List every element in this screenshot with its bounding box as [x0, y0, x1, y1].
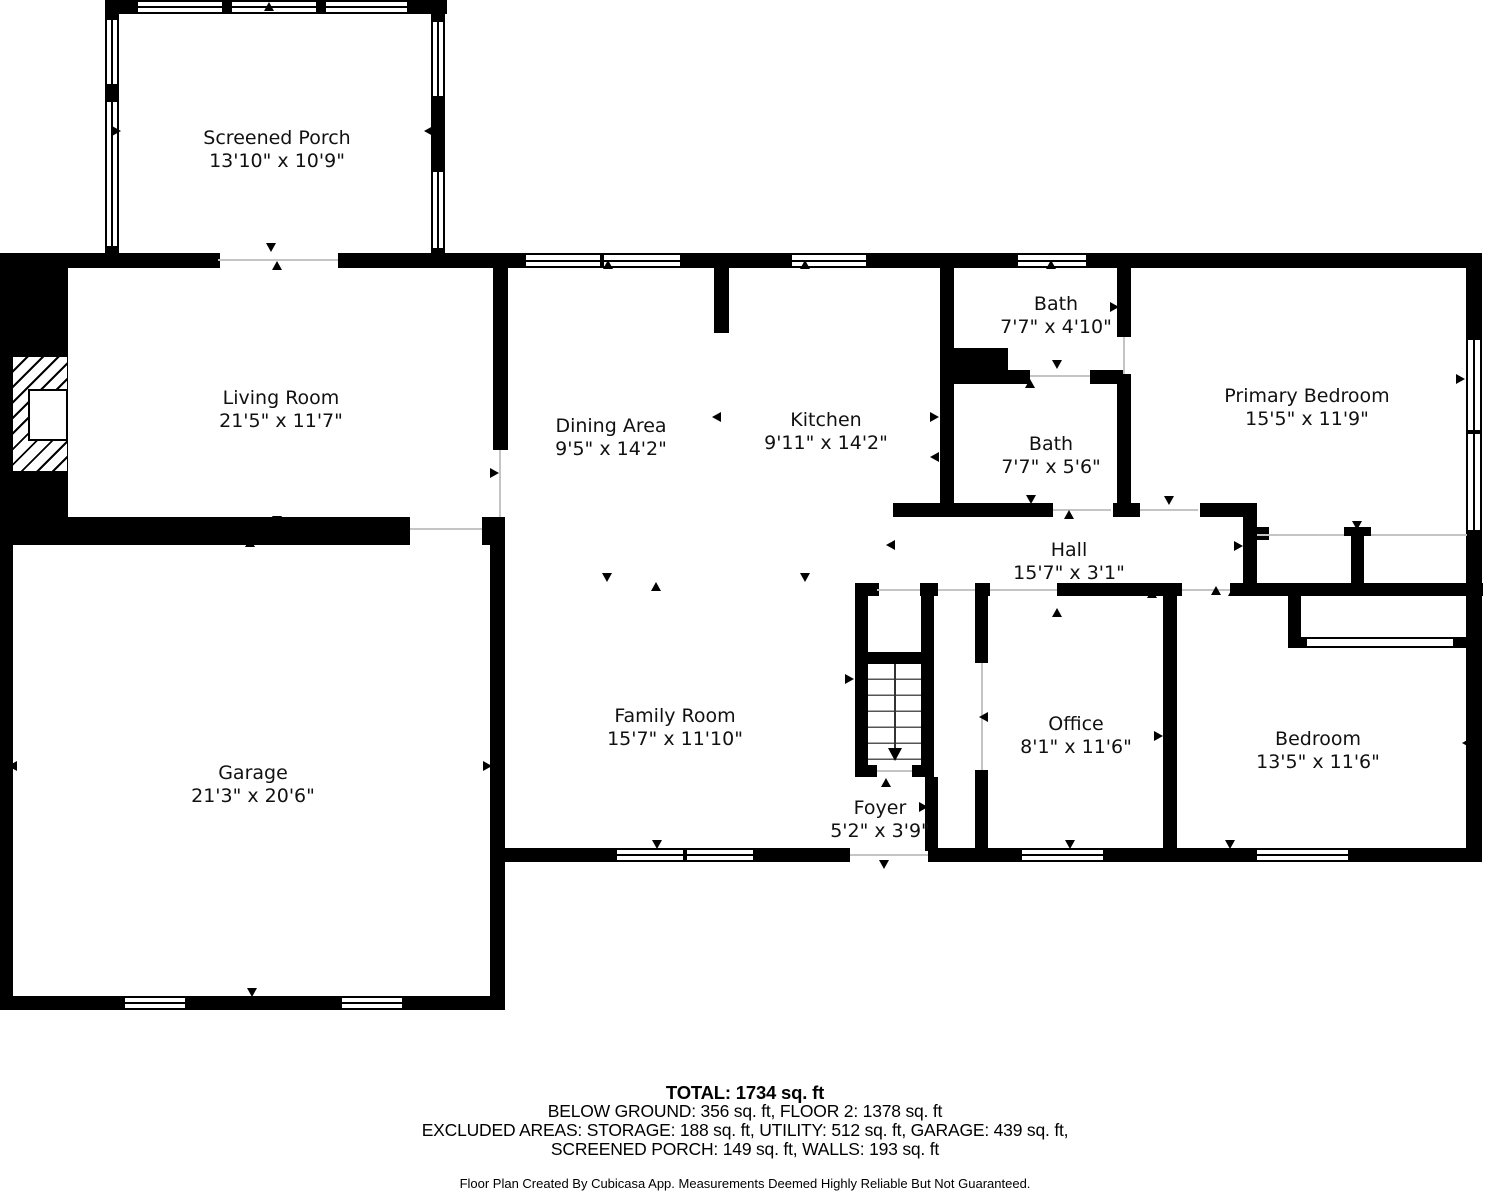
room-label-bath-upper: Bath7'7" x 4'10": [1000, 293, 1112, 339]
room-label-dining-area: Dining Area9'5" x 14'2": [555, 415, 667, 461]
door-arrow: [1025, 379, 1035, 388]
room-dims: 21'5" x 11'7": [219, 410, 343, 432]
total-area-line: TOTAL: 1734 sq. ft: [0, 1083, 1490, 1102]
front-door-line: [850, 854, 928, 856]
window: [1466, 338, 1482, 432]
wall-segment: [893, 503, 1053, 517]
door-opening-line: [877, 770, 912, 772]
door-opening-line: [1030, 375, 1090, 377]
room-dims: 5'2" x 3'9": [830, 820, 930, 842]
door-arrow: [881, 778, 891, 787]
door-arrow: [424, 126, 433, 136]
door-arrow: [603, 260, 613, 269]
room-label-garage: Garage21'3" x 20'6": [191, 762, 315, 808]
window: [615, 848, 685, 862]
wall-segment: [1088, 253, 1482, 268]
door-arrow: [1052, 360, 1062, 369]
wall-segment: [921, 583, 934, 777]
room-label-living-room: Living Room21'5" x 11'7": [219, 387, 343, 433]
door-arrow: [1462, 738, 1471, 748]
room-name: Screened Porch: [203, 127, 350, 149]
room-label-office: Office8'1" x 11'6": [1020, 713, 1132, 759]
door-arrow: [112, 126, 121, 136]
door-arrow: [1456, 374, 1465, 384]
door-arrow: [483, 761, 492, 771]
door-arrow: [266, 243, 276, 252]
wall-segment: [490, 848, 615, 862]
door-opening-line: [499, 450, 501, 517]
room-name: Living Room: [223, 387, 340, 409]
door-arrow: [1026, 495, 1036, 504]
room-name: Foyer: [854, 797, 907, 819]
door-opening-line: [1053, 509, 1111, 511]
door-opening-line: [1140, 509, 1198, 511]
door-arrow: [1052, 608, 1062, 617]
door-arrow: [1154, 731, 1163, 741]
door-arrow: [1352, 258, 1362, 267]
room-dims: 7'7" x 4'10": [1000, 316, 1112, 338]
window: [1020, 848, 1105, 862]
door-arrow: [1234, 541, 1243, 551]
window: [1466, 432, 1482, 532]
wall-segment: [1351, 531, 1364, 589]
door-arrow: [930, 452, 939, 462]
wall-segment: [1350, 848, 1482, 862]
room-dims: 13'10" x 10'9": [209, 150, 345, 172]
stairs-down-arrow: [888, 748, 902, 761]
room-name: Bath: [1029, 433, 1073, 455]
fireplace: [28, 389, 68, 441]
wall-segment: [0, 517, 410, 545]
door-arrow: [1211, 586, 1221, 595]
room-name: Garage: [218, 762, 288, 784]
room-label-foyer: Foyer5'2" x 3'9": [830, 797, 930, 843]
wall-segment: [0, 268, 68, 356]
wall-segment: [714, 253, 729, 333]
door-arrow: [930, 412, 939, 422]
credit-line: Floor Plan Created By Cubicasa App. Meas…: [0, 1176, 1490, 1191]
door-opening-line: [938, 589, 975, 591]
window: [431, 20, 445, 98]
door-arrow: [879, 860, 889, 869]
room-label-screened-porch: Screened Porch13'10" x 10'9": [203, 127, 350, 173]
wall-segment: [868, 253, 1016, 268]
wall-segment: [0, 253, 220, 268]
door-opening-line: [877, 589, 920, 591]
door-arrow: [800, 260, 810, 269]
wall-segment: [1243, 503, 1257, 595]
wall-segment: [338, 253, 524, 268]
door-arrow: [1046, 260, 1056, 269]
wall-segment: [948, 370, 1030, 384]
room-dims: 15'7" x 11'10": [607, 728, 743, 750]
door-opening-line: [1123, 337, 1125, 374]
door-arrow: [1228, 587, 1238, 596]
wall-segment: [975, 770, 988, 852]
door-opening-line: [990, 589, 1057, 591]
room-label-bath-lower: Bath7'7" x 5'6": [1001, 433, 1101, 479]
door-arrow: [272, 261, 282, 270]
closet-sliding-door: [1305, 637, 1455, 648]
door-arrow: [652, 840, 662, 849]
window: [602, 253, 682, 268]
wall-segment: [1117, 374, 1131, 505]
wall-segment: [682, 253, 790, 268]
door-arrow: [1352, 521, 1362, 530]
room-dims: 9'11" x 14'2": [764, 432, 888, 454]
staircase: [868, 664, 921, 765]
room-dims: 7'7" x 5'6": [1001, 456, 1101, 478]
door-arrow: [800, 573, 810, 582]
stairs-direction-line: [894, 664, 896, 750]
door-arrow: [1065, 840, 1075, 849]
wall-segment: [755, 848, 850, 862]
room-name: Office: [1048, 713, 1103, 735]
wall-segment: [1230, 583, 1483, 596]
window: [431, 170, 445, 250]
door-arrow: [845, 674, 854, 684]
room-name: Family Room: [614, 705, 735, 727]
wall-segment: [1452, 637, 1482, 648]
wall-segment: [0, 996, 505, 1010]
window: [105, 18, 119, 86]
floor-plan: Screened Porch13'10" x 10'9" Living Room…: [0, 0, 1490, 1196]
window: [136, 0, 224, 14]
room-label-kitchen: Kitchen9'11" x 14'2": [764, 409, 888, 455]
room-label-primary-bedroom: Primary Bedroom15'5" x 11'9": [1224, 385, 1389, 431]
window: [340, 996, 404, 1010]
door-arrow: [490, 468, 499, 478]
window: [123, 996, 187, 1010]
room-name: Primary Bedroom: [1224, 385, 1389, 407]
door-arrow: [272, 516, 282, 525]
wall-segment: [490, 517, 505, 1010]
wall-segment: [1105, 848, 1255, 862]
window: [230, 0, 318, 14]
wall-segment: [1113, 503, 1140, 517]
area-line-excluded-1: EXCLUDED AREAS: STORAGE: 188 sq. ft, UTI…: [0, 1121, 1490, 1140]
room-dims: 8'1" x 11'6": [1020, 736, 1132, 758]
room-name: Bedroom: [1275, 728, 1361, 750]
room-name: Dining Area: [555, 415, 666, 437]
room-dims: 9'5" x 14'2": [555, 438, 667, 460]
wall-segment: [975, 583, 988, 663]
room-label-bedroom: Bedroom13'5" x 11'6": [1256, 728, 1380, 774]
door-arrow: [602, 573, 612, 582]
door-arrow: [979, 712, 988, 722]
door-arrow: [651, 582, 661, 591]
window: [105, 100, 119, 248]
room-dims: 15'5" x 11'9": [1245, 408, 1369, 430]
door-arrow: [264, 2, 274, 11]
wall-segment: [1163, 596, 1177, 848]
area-line-below-ground: BELOW GROUND: 356 sq. ft, FLOOR 2: 1378 …: [0, 1102, 1490, 1121]
door-arrow: [712, 412, 721, 422]
room-label-family-room: Family Room15'7" x 11'10": [607, 705, 743, 751]
wall-segment: [855, 652, 868, 777]
wall-segment: [928, 848, 1020, 862]
door-arrow: [940, 302, 949, 312]
window: [324, 0, 409, 14]
wall-segment: [493, 268, 508, 450]
bath-vanity-block: [948, 348, 1008, 372]
door-arrow: [1064, 510, 1074, 519]
door-arrow: [1225, 840, 1235, 849]
door-arrow: [1147, 589, 1157, 598]
door-opening-line: [1182, 589, 1230, 591]
door-arrow: [1164, 496, 1174, 505]
wall-segment: [1117, 253, 1131, 337]
door-arrow: [247, 988, 257, 997]
room-name: Hall: [1051, 539, 1088, 561]
room-dims: 15'7" x 3'1": [1013, 562, 1125, 584]
room-dims: 21'3" x 20'6": [191, 785, 315, 807]
room-name: Bath: [1034, 293, 1078, 315]
area-summary: TOTAL: 1734 sq. ft BELOW GROUND: 356 sq.…: [0, 1083, 1490, 1159]
window: [524, 253, 602, 268]
window: [685, 848, 755, 862]
wall-segment: [912, 765, 934, 777]
door-arrow: [247, 530, 257, 539]
room-name: Kitchen: [790, 409, 861, 431]
door-arrow: [8, 761, 17, 771]
room-dims: 13'5" x 11'6": [1256, 751, 1380, 773]
room-label-hall: Hall15'7" x 3'1": [1013, 539, 1125, 585]
door-opening-line: [410, 528, 482, 530]
area-line-excluded-2: SCREENED PORCH: 149 sq. ft, WALLS: 193 s…: [0, 1140, 1490, 1159]
door-arrow: [245, 538, 255, 547]
window: [1255, 848, 1350, 862]
door-arrow: [886, 540, 895, 550]
wall-segment: [855, 765, 877, 777]
